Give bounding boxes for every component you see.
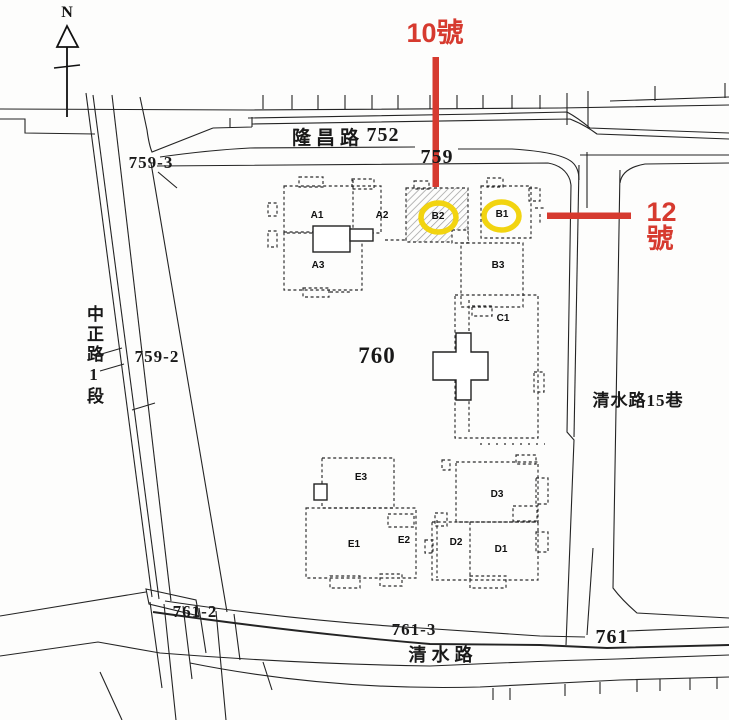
parcel-label-761: 761 [596,627,629,647]
building-label-b1: B1 [496,210,509,220]
compass-north-label: N [61,4,73,22]
cadastral-map: N 759-3 隆昌路 752 759 中正路1段 759-2 760 清水路1… [0,0,729,720]
parcel-label-759: 759 [421,147,454,167]
parcel-label-760: 760 [358,344,396,367]
building-label-c1: C1 [497,314,510,324]
solid-structures [313,226,488,500]
parcel-label-759-2: 759-2 [135,348,180,365]
callout-label-house-10: 10號 [406,20,463,47]
building-label-d2: D2 [450,538,463,548]
road-label-qingshui: 清水路 [409,646,478,664]
parcel-label-761-2: 761-2 [173,603,218,620]
building-label-a2: A2 [376,211,389,221]
building-label-a1: A1 [311,211,324,221]
building-label-e1: E1 [348,540,360,550]
road-label-qingshui-lane15: 清水路15巷 [593,392,684,409]
road-label-longchang: 隆昌路 [292,129,364,148]
building-label-e2: E2 [398,536,410,546]
building-label-d1: D1 [495,545,508,555]
parcel-label-752: 752 [367,125,400,145]
building-footprints [268,177,548,588]
building-label-d3: D3 [491,490,504,500]
north-arrow-icon [54,26,80,117]
parcel-label-761-3: 761-3 [392,621,437,638]
callout-line-12 [547,213,631,220]
parcel-label-759-3: 759-3 [129,154,174,171]
building-label-b3: B3 [492,261,505,271]
cross-building [433,333,488,400]
building-label-b2: B2 [432,212,445,222]
road-label-zhongzheng: 中正路1段 [85,305,102,407]
callout-label-house-12: 12號 [647,199,702,253]
building-label-a3: A3 [312,261,325,271]
building-label-e3: E3 [355,473,367,483]
